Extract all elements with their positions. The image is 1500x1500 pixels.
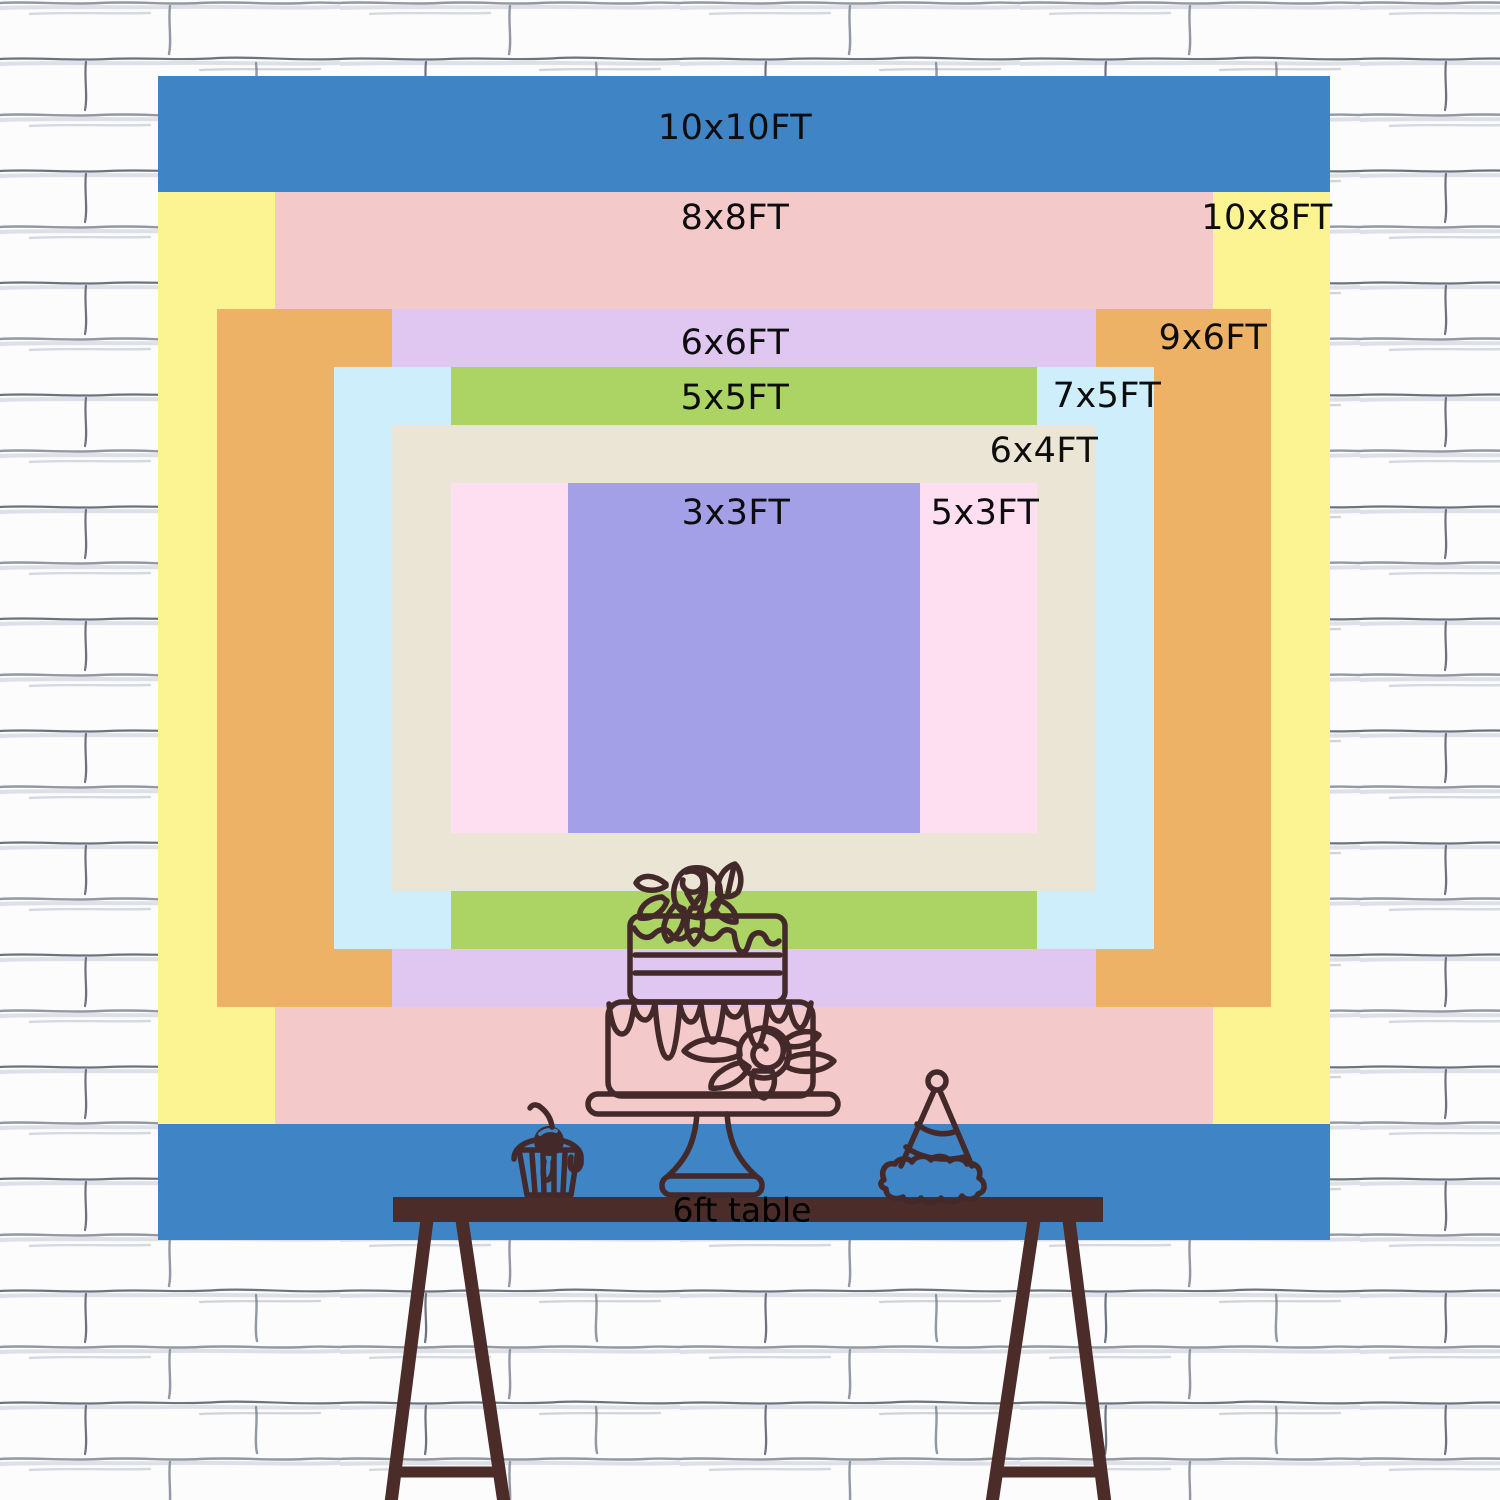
table-size-label: 6ft table bbox=[672, 1191, 811, 1230]
party-hat-illustration bbox=[881, 1072, 984, 1203]
cake-illustration bbox=[588, 864, 838, 1195]
table-right-leg-a bbox=[992, 1220, 1034, 1500]
table-left-leg-a bbox=[391, 1220, 427, 1500]
table-and-dessert-illustration bbox=[0, 0, 1500, 1500]
table-left-leg-b bbox=[462, 1220, 504, 1500]
cupcake-illustration bbox=[514, 1105, 581, 1195]
table-illustration bbox=[391, 1197, 1105, 1500]
table-right-leg-b bbox=[1069, 1220, 1105, 1500]
backdrop-size-chart-page: 10x10FT10x8FT8x8FT9x6FT6x6FT7x5FT5x5FT6x… bbox=[0, 0, 1500, 1500]
